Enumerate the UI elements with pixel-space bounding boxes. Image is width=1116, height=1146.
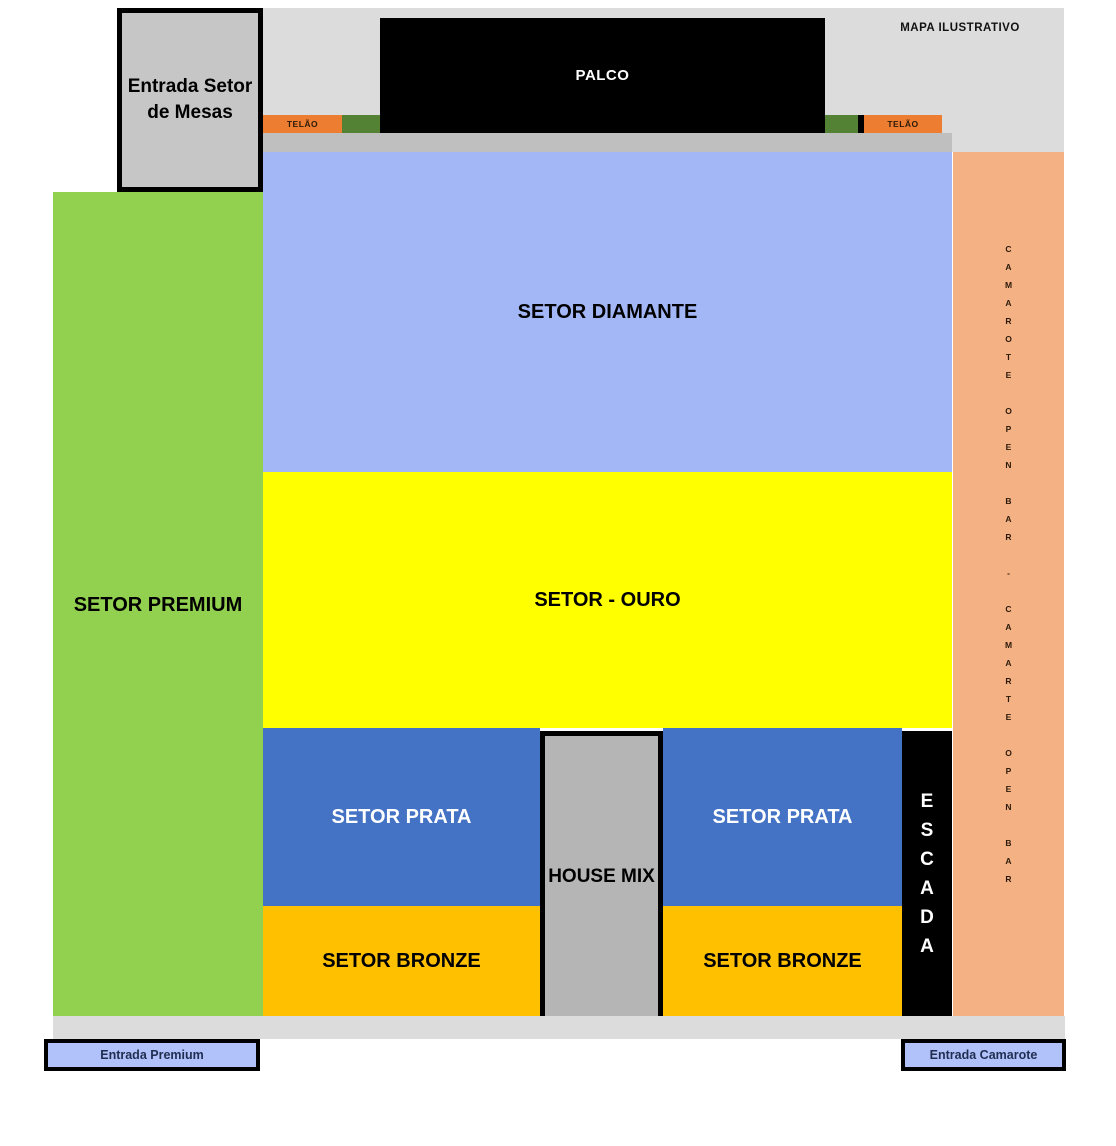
stage-block: PALCO [380, 18, 825, 133]
stairs-block: ESCADA [902, 731, 952, 1016]
entrance-premium-box: Entrada Premium [44, 1039, 260, 1071]
screen-left-block: TELÃO [263, 115, 342, 133]
house-mix-booth: HOUSE MIX [540, 731, 663, 1022]
screen-left-label: TELÃO [287, 119, 318, 129]
entrance-camarote-label: Entrada Camarote [930, 1048, 1038, 1062]
sector-bronze-right-label: SETOR BRONZE [703, 950, 862, 973]
stage-label: PALCO [576, 67, 630, 84]
sector-ouro-label: SETOR - OURO [534, 589, 680, 612]
screen-green-left-block [342, 115, 380, 133]
screen-right-block: TELÃO [864, 115, 942, 133]
camarote-open-bar-column: CAMAROTEOPENBAR-CAMARTEOPENBAR [953, 152, 1064, 1018]
entrance-mesas-label: Entrada Setor de Mesas [126, 74, 254, 125]
map-disclaimer-label: MAPA ILUSTRATIVO [880, 22, 1040, 34]
sector-prata-right-label: SETOR PRATA [712, 806, 852, 829]
sector-bronze-left-label: SETOR BRONZE [322, 950, 481, 973]
entrance-camarote-box: Entrada Camarote [901, 1039, 1066, 1071]
sector-premium-label: SETOR PREMIUM [74, 594, 243, 617]
sector-prata-right: SETOR PRATA [663, 728, 902, 906]
sector-ouro: SETOR - OURO [263, 472, 952, 728]
screen-right-label: TELÃO [887, 119, 918, 129]
sector-premium: SETOR PREMIUM [53, 192, 263, 1018]
stairs-label: ESCADA [920, 787, 934, 961]
sector-prata-left: SETOR PRATA [263, 728, 540, 906]
sector-diamante: SETOR DIAMANTE [263, 152, 952, 472]
camarote-open-bar-label: CAMAROTEOPENBAR-CAMARTEOPENBAR [1005, 240, 1012, 1018]
house-mix-label: HOUSE MIX [548, 866, 655, 888]
sector-diamante-label: SETOR DIAMANTE [518, 301, 698, 324]
venue-map: MAPA ILUSTRATIVO PALCO TELÃO TELÃO SETOR… [0, 0, 1116, 1146]
stage-front-strip [263, 133, 952, 152]
screen-green-right-block [825, 115, 858, 133]
bottom-walkway-strip [53, 1016, 1065, 1039]
sector-bronze-left: SETOR BRONZE [263, 906, 540, 1016]
sector-prata-left-label: SETOR PRATA [331, 806, 471, 829]
entrance-mesas-box: Entrada Setor de Mesas [117, 8, 263, 192]
sector-bronze-right: SETOR BRONZE [663, 906, 902, 1016]
entrance-premium-label: Entrada Premium [100, 1048, 204, 1062]
